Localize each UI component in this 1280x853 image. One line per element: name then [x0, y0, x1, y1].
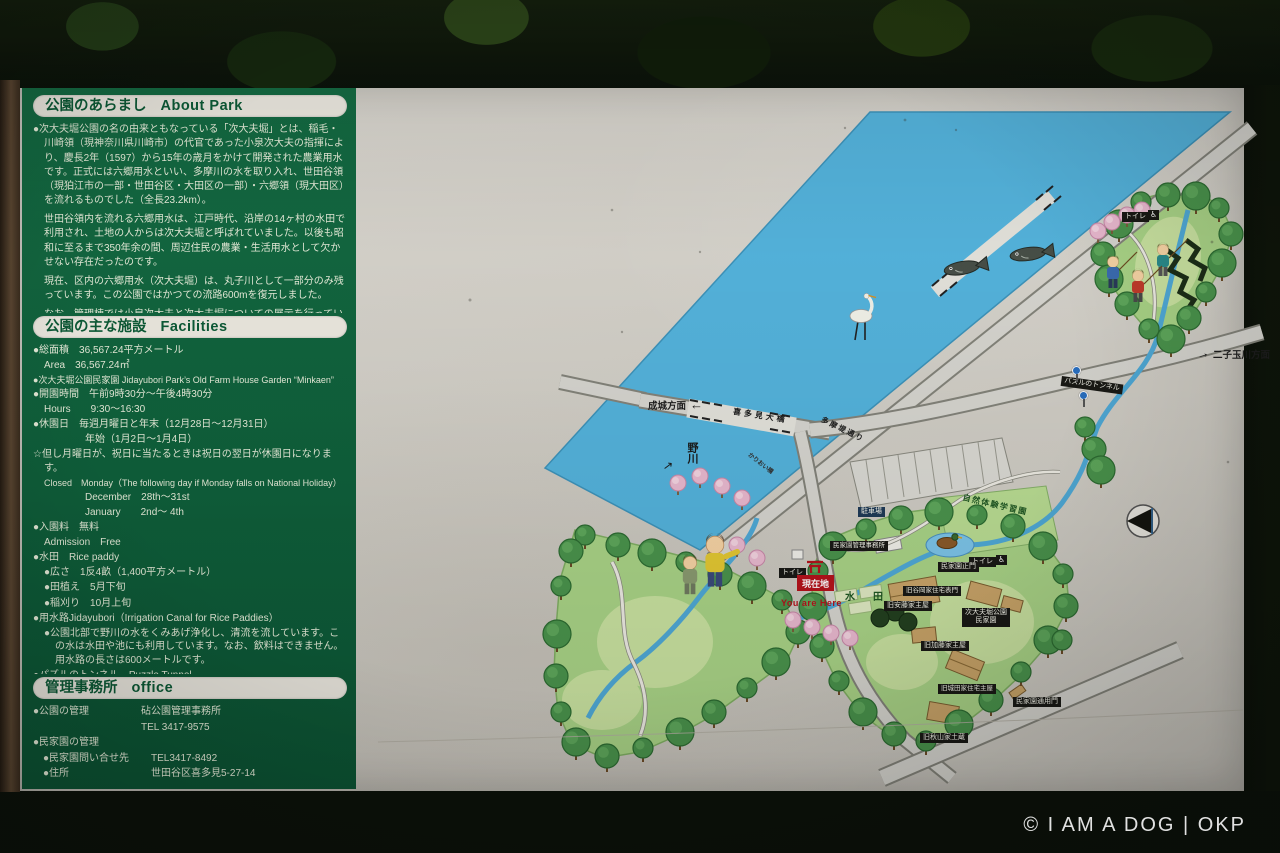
office-row: ●住所 世田谷区喜多見5-27-14 — [33, 767, 347, 780]
bus-stop-icon — [1072, 366, 1081, 375]
facility-line: ●水田 Rice paddy — [33, 551, 347, 565]
minkaen-office-badge: 民家園管理事務所 — [830, 541, 888, 551]
facility-line: ☆但し月曜日が、祝日に当たるときは祝日の翌日が休園日になります。 — [33, 448, 347, 475]
section-facilities: 公園の主な施設 Facilities ●総面積 36,567.24平方メートル … — [33, 316, 347, 674]
facility-line: December 28th～31st — [33, 491, 347, 505]
direction-futakotamagawa: → 二子玉川方面 — [1196, 346, 1270, 361]
building-badge-shirota: 旧城田家住宅主屋 — [938, 684, 996, 694]
right-arrow-icon: → — [1194, 344, 1211, 362]
rice-paddy-label: 水 田 — [845, 588, 887, 603]
facility-line: ●稲刈り 10月上旬 — [33, 597, 347, 611]
header-office-en: office — [132, 679, 174, 697]
section-header-facilities: 公園の主な施設 Facilities — [33, 316, 347, 338]
facility-line: ●広さ 1反4畝（1,400平方メートル） — [33, 566, 347, 580]
about-body: ●次大夫堀公園の名の由来ともなっている「次大夫堀」とは、稲毛・川崎領（現神奈川県… — [33, 123, 347, 313]
facility-line: ●公園北部で野川の水をくみあげ浄化し、清流を流しています。この水は水田や池にも利… — [33, 627, 347, 668]
office-row: ●民家園問い合せ先 TEL3417-8492 — [33, 752, 347, 765]
facility-line: ●総面積 36,567.24平方メートル — [33, 344, 347, 358]
you-are-here-label-en: You are Here — [781, 598, 842, 608]
facility-line: ●田植え 5月下旬 — [33, 581, 347, 595]
building-badge-ando: 旧安藤家主屋 — [884, 601, 932, 611]
facility-line: Admission Free — [33, 536, 347, 550]
header-facilities-en: Facilities — [161, 318, 228, 336]
header-facilities-ja: 公園の主な施設 — [45, 318, 147, 336]
section-header-office: 管理事務所 office — [33, 677, 347, 699]
facility-line: ●休園日 毎週月曜日と年末（12月28日～12月31日） — [33, 418, 347, 432]
office-row: TEL 3417-9575 — [33, 721, 347, 734]
header-about-en: About Park — [161, 97, 243, 115]
wooden-post — [0, 80, 20, 792]
office-row: ●公園の管理 砧公園管理事務所 — [33, 705, 347, 718]
facility-line: Hours 9:30～16:30 — [33, 403, 347, 417]
wheelchair-icon: ♿ — [996, 555, 1007, 565]
info-panel: 公園のあらまし About Park ●次大夫堀公園の名の由来ともなっている「次… — [22, 87, 356, 789]
facility-line: Closed Monday（The following day if Monda… — [33, 477, 347, 489]
photo-of-park-sign: 公園のあらまし About Park ●次大夫堀公園の名の由来ともなっている「次… — [0, 0, 1280, 853]
about-paragraph: ●次大夫堀公園の名の由来ともなっている「次大夫堀」とは、稲毛・川崎領（現神奈川県… — [33, 123, 347, 208]
facility-line: ●用水路Jidayubori（Irrigation Canal for Rice… — [33, 612, 347, 626]
minkaen-main-gate-badge: 民家園正門 — [938, 562, 979, 572]
section-header-about: 公園のあらまし About Park — [33, 95, 347, 117]
bus-stop-icon — [1079, 391, 1088, 400]
facility-line: ●パズルのトンネル Puzzle Tunnel — [33, 669, 347, 674]
torii-icon — [806, 559, 824, 573]
facility-line: Area 36,567.24㎡ — [33, 359, 347, 373]
facility-line: ●開園時間 午前9時30分～午後4時30分 — [33, 388, 347, 402]
facilities-list: ●総面積 36,567.24平方メートル Area 36,567.24㎡ ●次大… — [33, 344, 347, 674]
building-badge-akiyama: 旧秋山家土蔵 — [920, 733, 968, 743]
header-office-ja: 管理事務所 — [45, 679, 118, 697]
facility-line: ●次大夫堀公園民家園 Jidayubori Park’s Old Farm Ho… — [33, 374, 347, 386]
building-badge-kato: 旧加藤家主屋 — [921, 641, 969, 651]
office-rows: ●公園の管理 砧公園管理事務所 TEL 3417-9575 ●民家園の管理 ●民… — [33, 705, 347, 781]
parking-badge: 駐車場 — [858, 507, 885, 517]
section-about-park: 公園のあらまし About Park ●次大夫堀公園の名の由来ともなっている「次… — [33, 95, 347, 313]
river-label-nogawa: 野川 — [684, 442, 700, 464]
about-paragraph: 現在、区内の六郷用水（次大夫堀）は、丸子川として一部分のみ残っています。この公園… — [33, 275, 347, 303]
photographer-watermark: © I AM A DOG | OKP — [1023, 814, 1246, 837]
river-flow-arrow-icon: ↗ — [662, 458, 674, 473]
about-paragraph: なお、管理棟では小泉次大夫と次大夫堀についての展示を行っています。 — [33, 308, 347, 313]
office-row: ●民家園の管理 — [33, 736, 347, 749]
building-badge-omotemon: 旧谷岡家住宅表門 — [903, 586, 961, 596]
facility-line: 年始（1月2日～1月4日） — [33, 433, 347, 447]
foliage-right-edge — [1244, 85, 1280, 791]
facility-line: ●入園料 無料 — [33, 521, 347, 535]
about-paragraph: 世田谷領内を流れる六郷用水は、江戸時代、沿岸の14ヶ村の水田で利用され、土地の人… — [33, 213, 347, 270]
minkaen-side-gate-badge: 民家園通用門 — [1013, 697, 1061, 707]
you-are-here-badge-ja: 現在地 — [797, 575, 834, 591]
left-arrow-icon: ← — [690, 397, 703, 412]
toilet-badge: トイレ — [1122, 212, 1149, 222]
section-office: 管理事務所 office ●公園の管理 砧公園管理事務所 TEL 3417-95… — [33, 677, 347, 781]
wheelchair-icon: ♿ — [1148, 210, 1159, 220]
facility-line: January 2nd～ 4th — [33, 506, 347, 520]
foliage-top — [0, 0, 1280, 88]
direction-seijo: 成城方面 ← — [648, 397, 703, 412]
minkaen-name-badge: 次大夫堀公園 民家園 — [962, 608, 1010, 627]
header-about-ja: 公園のあらまし — [45, 97, 147, 115]
sign-board: 公園のあらまし About Park ●次大夫堀公園の名の由来ともなっている「次… — [20, 85, 1244, 791]
